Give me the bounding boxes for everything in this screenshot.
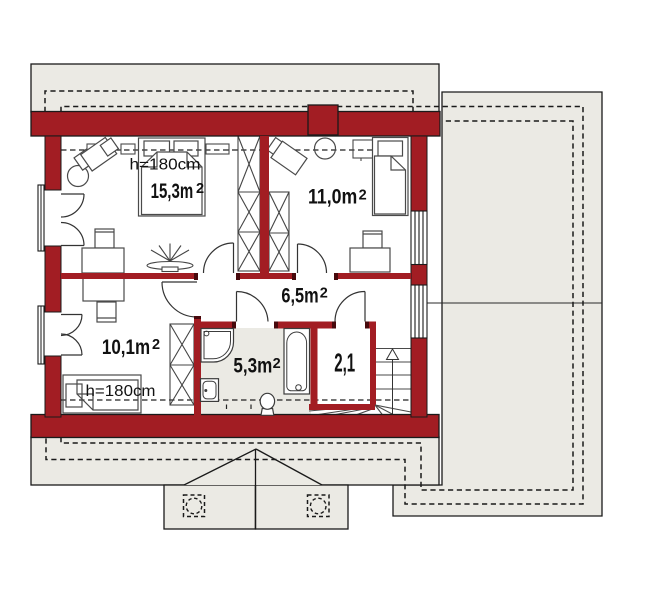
svg-text:h=180cm: h=180cm	[130, 157, 201, 174]
svg-text:2: 2	[320, 286, 328, 302]
svg-text:6,5m: 6,5m	[281, 285, 318, 308]
svg-text:10,1m: 10,1m	[102, 336, 150, 359]
svg-text:h=180cm: h=180cm	[86, 383, 156, 400]
svg-text:2: 2	[152, 337, 160, 353]
svg-text:2: 2	[196, 181, 204, 197]
svg-text:2: 2	[273, 356, 281, 372]
svg-text:11,0m: 11,0m	[308, 186, 357, 209]
svg-text:15,3m: 15,3m	[151, 180, 194, 203]
svg-text:5,3m: 5,3m	[233, 355, 272, 378]
svg-text:2: 2	[359, 187, 367, 203]
svg-text:2,1: 2,1	[334, 347, 355, 377]
